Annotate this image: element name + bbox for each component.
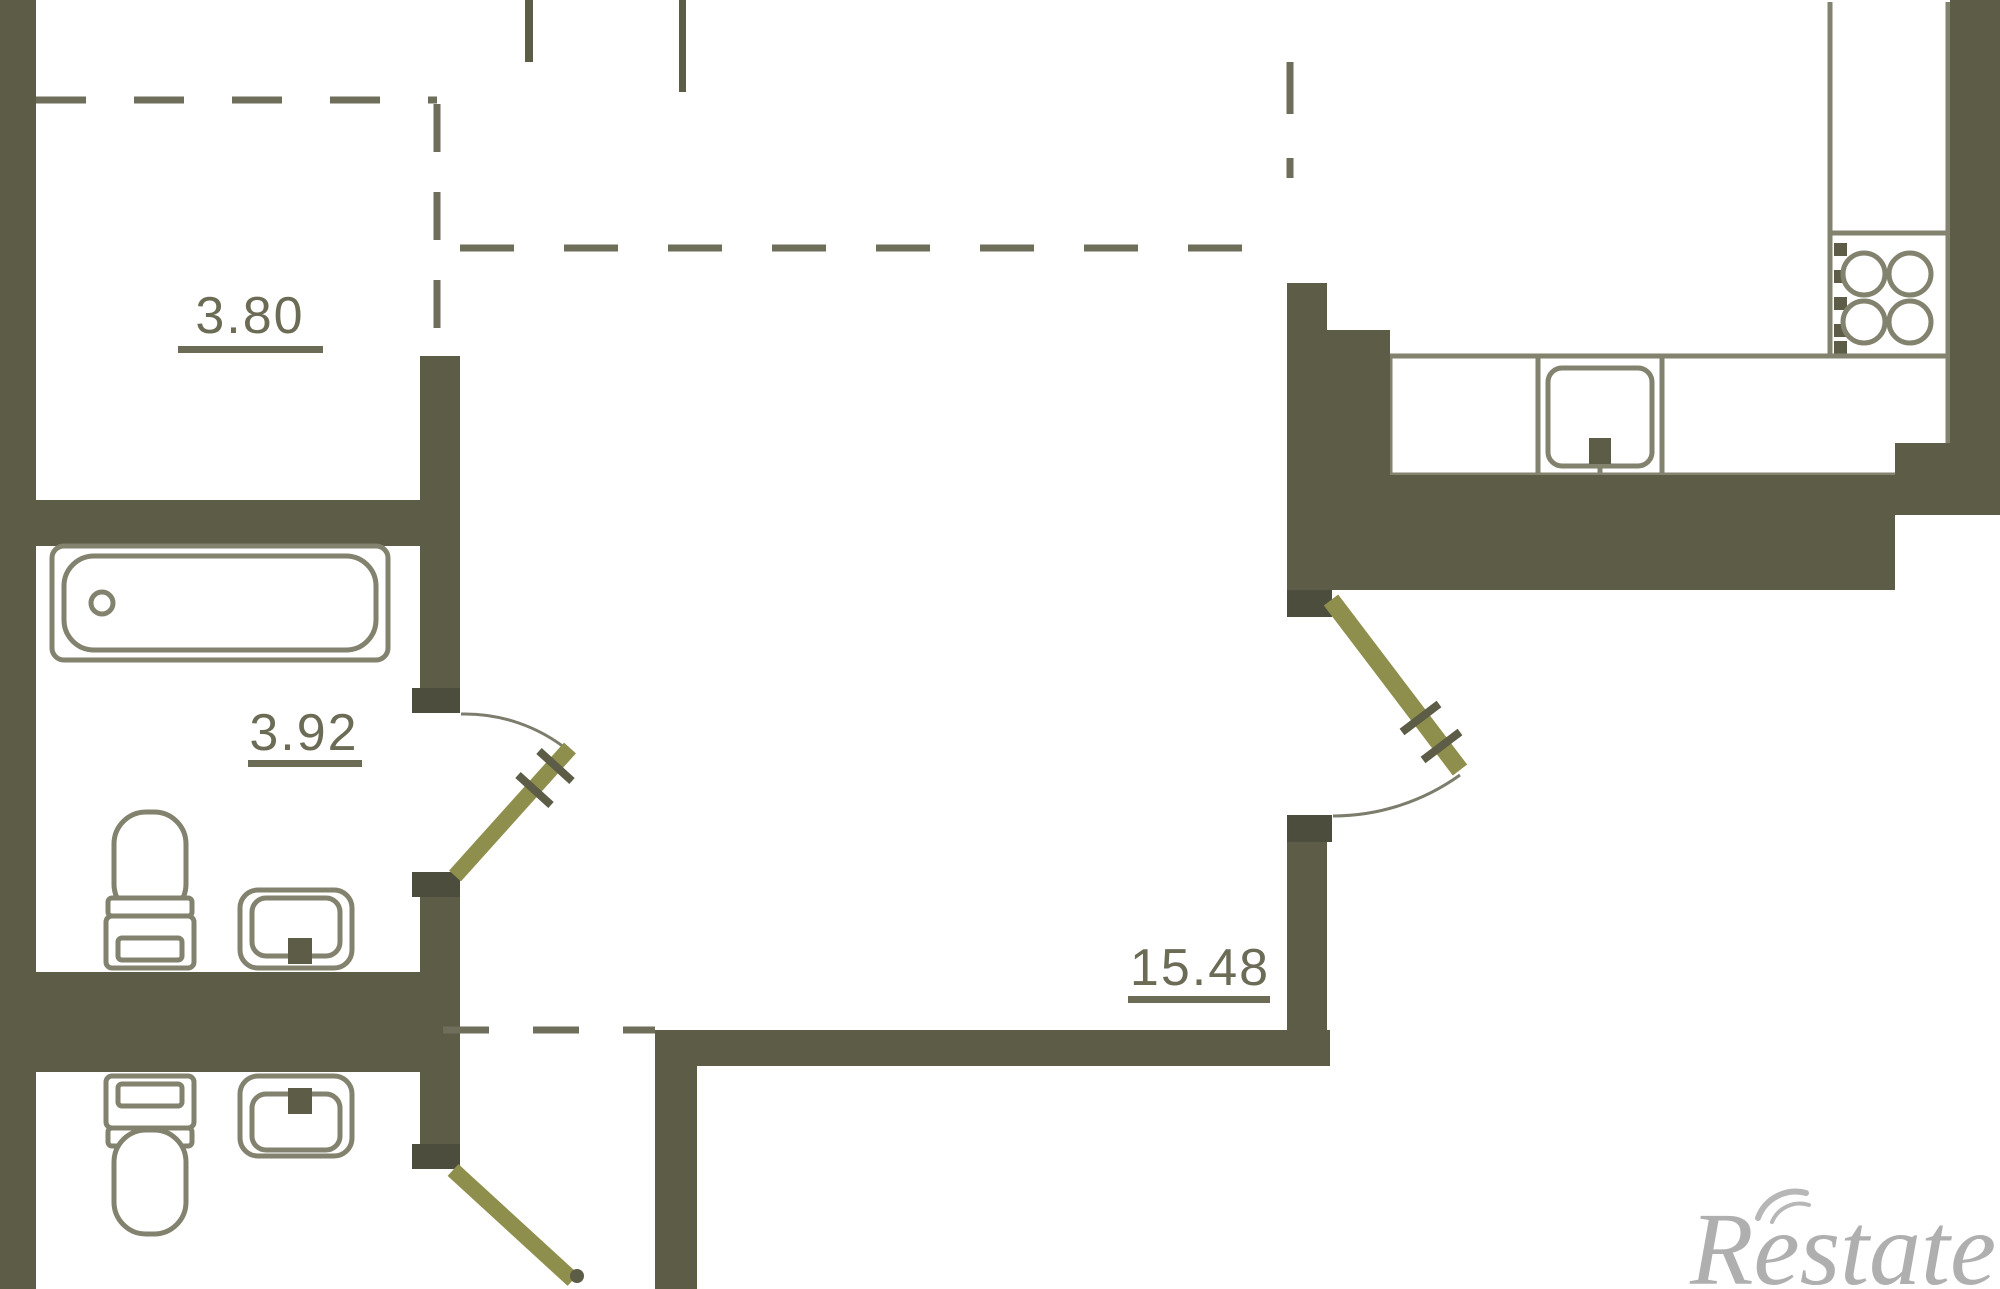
- door-jamb: [1287, 815, 1332, 842]
- door-handle-icon: [570, 1269, 584, 1283]
- wall-stub-top-a: [525, 0, 533, 62]
- kitchen-sink-tap-icon: [1589, 438, 1611, 464]
- wall-left: [0, 0, 36, 1289]
- wall-stub-top-b: [679, 0, 686, 92]
- stove-vent-icon: [1834, 341, 1847, 354]
- label-underline: [1128, 996, 1270, 1003]
- door-swing-arc: [461, 714, 569, 751]
- wall-right-block: [1895, 443, 1950, 515]
- toilet-seat-band: [108, 898, 192, 916]
- stove-vent-icon: [1834, 297, 1847, 310]
- room-area-label: 3.92: [249, 704, 358, 762]
- wall-closet-bottom: [36, 500, 460, 546]
- stove-burner-icon: [1889, 301, 1931, 343]
- wall-kitchen-bottom: [1287, 475, 1895, 590]
- room-area-label: 15.48: [1130, 939, 1270, 997]
- bathroom-fixtures: [52, 546, 388, 1234]
- wall-bathroom-right-upper: [420, 544, 460, 690]
- bathtub-drain-icon: [91, 592, 113, 614]
- watermark: Restate: [1689, 1192, 1996, 1289]
- label-underline: [248, 760, 362, 767]
- wall-hall-bottom: [655, 1030, 1330, 1066]
- door-leaf: [453, 1170, 573, 1280]
- kitchen-counter-right: [1830, 2, 1948, 356]
- room-area-label: 3.80: [195, 287, 304, 345]
- label-underline: [178, 346, 323, 353]
- sink-tap-icon: [288, 938, 312, 964]
- stove-burner-icon: [1843, 301, 1885, 343]
- door-jamb: [1287, 590, 1332, 617]
- door-jamb: [412, 688, 460, 713]
- wall-kitchen-step: [1327, 330, 1390, 475]
- stove-burner-icon: [1889, 253, 1931, 295]
- toilet-cistern-inner: [118, 938, 182, 960]
- door-jamb: [412, 872, 460, 897]
- wall-hall-column: [655, 1030, 697, 1289]
- wall-bathroom-divider: [36, 972, 448, 1072]
- floor-plan: 3.80 3.92 15.48 Restate: [0, 0, 2000, 1289]
- kitchen-counter-top: [1390, 356, 1948, 475]
- wall-kitchen-left: [1287, 283, 1327, 475]
- sink-tap-icon: [288, 1088, 312, 1114]
- toilet-cistern-inner: [118, 1084, 182, 1106]
- stove-vent-icon: [1834, 243, 1847, 256]
- floor-plan-page: 3.80 3.92 15.48 Restate: [0, 0, 2000, 1289]
- stove-burner-icon: [1843, 253, 1885, 295]
- toilet-icon: [114, 1130, 186, 1234]
- door-swing-arc: [1333, 775, 1460, 816]
- kitchen-fixtures: [1390, 2, 1948, 475]
- wall-closet-right: [420, 356, 460, 502]
- watermark-text: Restate: [1689, 1192, 1996, 1289]
- wall-right: [1950, 0, 2000, 515]
- wall-kitchen-left-lower: [1287, 842, 1327, 1034]
- door-jamb: [412, 1144, 460, 1169]
